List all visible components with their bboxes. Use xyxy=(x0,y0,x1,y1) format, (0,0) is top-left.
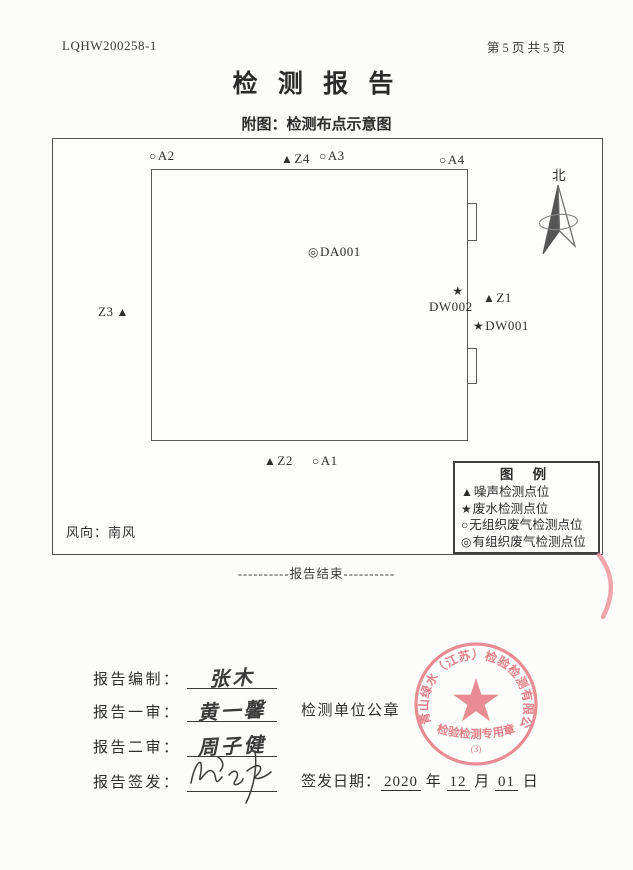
marker-label: Z3 xyxy=(98,304,113,319)
marker-label: Z4 xyxy=(294,151,309,166)
signature-line: 黄一馨 xyxy=(187,703,277,722)
legend-item-label: 有组织废气检测点位 xyxy=(472,535,585,549)
marker-label: A3 xyxy=(328,148,345,163)
signoff-label: 报告一审： xyxy=(93,705,181,721)
legend-title: 图 例 xyxy=(461,466,593,484)
issue-year: 2020 xyxy=(381,774,421,791)
marker-DW002: ★DW002 xyxy=(429,285,473,313)
svg-text:检验检测专用章: 检验检测专用章 xyxy=(436,721,517,741)
triangle-icon: ▲ xyxy=(281,152,293,166)
day-unit: 日 xyxy=(523,774,539,790)
handwritten-signature-scribble xyxy=(183,745,283,807)
marker-label: Z1 xyxy=(496,290,511,305)
marker-label: DW002 xyxy=(429,300,473,313)
marker-Z1: ▲Z1 xyxy=(483,290,512,306)
legend-item-label: 废水检测点位 xyxy=(473,502,549,516)
star-icon: ★ xyxy=(473,319,484,333)
report-page: { "page": { "report_code": "LQHW200258-1… xyxy=(0,0,633,870)
star-icon: ★ xyxy=(461,502,472,516)
report-end-line: ----------报告结束---------- xyxy=(0,563,633,582)
legend-box: 图 例 ▲噪声检测点位 ★废水检测点位 ○无组织废气检测点位 ◎有组织废气检测点… xyxy=(453,461,600,554)
north-label: 北 xyxy=(552,164,566,184)
double-circle-icon: ◎ xyxy=(308,245,319,259)
signoff-row-issuer: 报告签发： xyxy=(93,771,277,792)
circle-icon: ○ xyxy=(439,153,447,167)
signoff-row-first-review: 报告一审：黄一馨 xyxy=(93,701,277,722)
circle-icon: ○ xyxy=(312,454,320,468)
seal-caption: 检测单位公章 xyxy=(301,699,400,720)
marker-label: A2 xyxy=(158,148,175,163)
page-number: 第 5 页 共 5 页 xyxy=(487,37,565,56)
issue-month: 12 xyxy=(447,774,470,791)
building-door-notch-bottom xyxy=(467,348,477,384)
legend-item-label: 噪声检测点位 xyxy=(474,485,550,499)
signoff-label: 报告二审： xyxy=(93,740,181,756)
marker-label: DW001 xyxy=(485,318,529,333)
marker-label: A4 xyxy=(448,152,465,167)
company-seal: 青山绿水（江苏）检验检测有限公司 检验检测专用章 (3) xyxy=(412,640,542,770)
legend-item-noise: ▲噪声检测点位 xyxy=(461,484,593,501)
marker-label: DA001 xyxy=(320,244,361,259)
handwritten-signature: 张木 xyxy=(208,661,255,692)
triangle-icon: ▲ xyxy=(483,291,495,305)
year-unit: 年 xyxy=(426,774,442,790)
marker-label: A1 xyxy=(321,453,338,468)
marker-label: Z2 xyxy=(277,453,292,468)
building-outline xyxy=(151,169,468,441)
star-icon: ★ xyxy=(452,285,463,298)
legend-item-fugitive-gas: ○无组织废气检测点位 xyxy=(461,517,593,534)
triangle-icon: ▲ xyxy=(116,305,128,319)
layout-diagram: ○A2 ▲Z4 ○A3 ○A4 ◎DA001 ★DW002 ▲Z1 ★DW001… xyxy=(52,138,603,555)
signoff-label: 报告编制： xyxy=(93,672,181,688)
wind-direction-label: 风向：南风 xyxy=(66,522,136,541)
circle-icon: ○ xyxy=(461,518,468,532)
legend-item-stack-gas: ◎有组织废气检测点位 xyxy=(461,534,593,551)
issue-date-label: 签发日期： xyxy=(301,774,381,790)
circle-icon: ○ xyxy=(149,149,157,163)
legend-item-wastewater: ★废水检测点位 xyxy=(461,501,593,518)
signature-line xyxy=(187,773,277,792)
marker-DW001: ★DW001 xyxy=(473,318,529,334)
page-subtitle: 附图：检测布点示意图 xyxy=(0,113,633,134)
marker-DA001: ◎DA001 xyxy=(308,244,361,260)
marker-A1: ○A1 xyxy=(312,453,338,469)
marker-A4: ○A4 xyxy=(439,152,465,168)
month-unit: 月 xyxy=(474,774,490,790)
seal-star-icon xyxy=(453,678,499,721)
signoff-row-compiler: 报告编制：张木 xyxy=(93,668,277,689)
marker-Z2: ▲Z2 xyxy=(264,453,293,469)
triangle-icon: ▲ xyxy=(461,485,473,499)
seal-type-text: 检验检测专用章 xyxy=(436,721,517,741)
legend-item-label: 无组织废气检测点位 xyxy=(469,518,582,532)
north-arrow-icon xyxy=(535,184,581,256)
marker-Z4: ▲Z4 xyxy=(281,151,310,167)
handwritten-signature: 黄一馨 xyxy=(196,693,266,726)
signoff-label: 报告签发： xyxy=(93,775,181,791)
building-door-notch-top xyxy=(467,203,477,241)
double-circle-icon: ◎ xyxy=(461,535,471,549)
partial-stamp-mark xyxy=(595,551,621,621)
page-title: 检 测 报 告 xyxy=(0,64,633,100)
triangle-icon: ▲ xyxy=(264,454,276,468)
seal-number: (3) xyxy=(471,744,482,754)
report-code: LQHW200258-1 xyxy=(62,38,157,54)
signature-line: 张木 xyxy=(187,670,277,689)
marker-Z3: Z3▲ xyxy=(98,304,130,320)
issue-day: 01 xyxy=(495,774,518,791)
circle-icon: ○ xyxy=(319,149,327,163)
issue-date-row: 签发日期：2020 年 12 月 01 日 xyxy=(301,770,539,791)
marker-A3: ○A3 xyxy=(319,148,345,164)
marker-A2: ○A2 xyxy=(149,148,175,164)
